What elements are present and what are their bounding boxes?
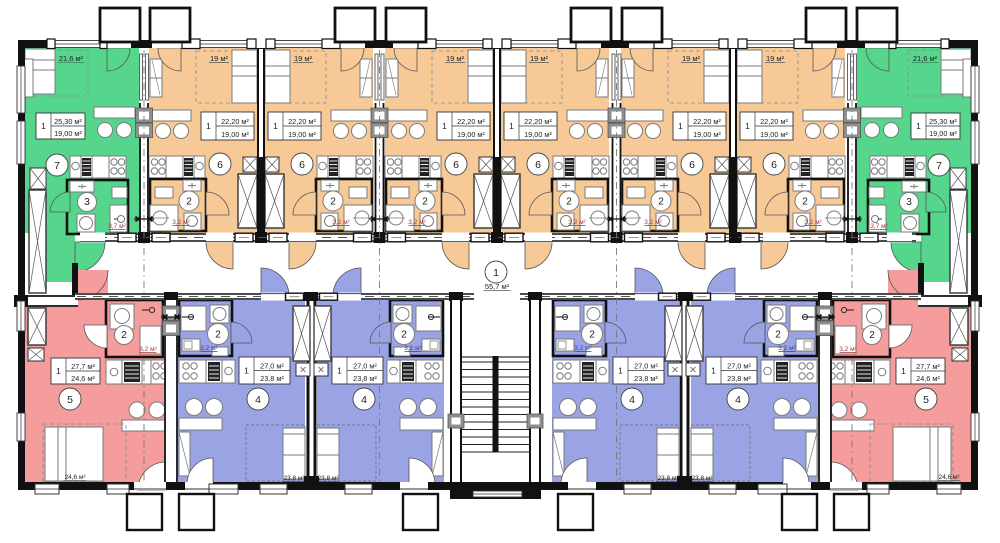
svg-text:2: 2 <box>658 196 664 207</box>
svg-text:1: 1 <box>916 121 921 131</box>
svg-text:2: 2 <box>121 330 127 341</box>
svg-text:2: 2 <box>401 330 407 341</box>
svg-text:22,20 м²: 22,20 м² <box>760 117 788 126</box>
svg-text:4: 4 <box>361 394 367 406</box>
svg-text:27,7 м²: 27,7 м² <box>916 362 940 371</box>
svg-text:6: 6 <box>771 159 777 171</box>
svg-text:3,7 м²: 3,7 м² <box>108 223 126 230</box>
svg-text:2: 2 <box>566 196 572 207</box>
svg-text:1: 1 <box>442 121 447 131</box>
svg-text:3: 3 <box>84 197 90 208</box>
svg-text:1: 1 <box>901 366 906 376</box>
svg-text:27,0 м²: 27,0 м² <box>727 362 751 371</box>
svg-text:23,8 м²: 23,8 м² <box>691 475 713 482</box>
svg-text:1: 1 <box>56 366 61 376</box>
svg-text:1: 1 <box>337 366 342 376</box>
svg-text:3,7 м²: 3,7 м² <box>870 223 888 230</box>
svg-text:23,8 м²: 23,8 м² <box>353 374 377 383</box>
svg-text:24,6 м²: 24,6 м² <box>916 374 940 383</box>
svg-text:1: 1 <box>41 121 46 131</box>
svg-text:1: 1 <box>618 366 623 376</box>
svg-text:3,2 м²: 3,2 м² <box>778 345 796 352</box>
svg-text:2: 2 <box>215 330 221 341</box>
svg-text:21,6 м²: 21,6 м² <box>59 54 84 63</box>
svg-text:1: 1 <box>493 267 499 279</box>
svg-text:1: 1 <box>244 366 249 376</box>
svg-text:5: 5 <box>923 394 929 406</box>
svg-text:3,2 м²: 3,2 м² <box>644 219 662 226</box>
svg-text:6: 6 <box>535 159 541 171</box>
svg-text:23,8 м²: 23,8 м² <box>260 374 284 383</box>
svg-text:19 м²: 19 м² <box>446 54 465 63</box>
svg-text:1: 1 <box>509 121 514 131</box>
svg-text:19,00 м²: 19,00 м² <box>221 130 249 139</box>
svg-text:19,00 м²: 19,00 м² <box>929 129 957 138</box>
svg-text:22,20 м²: 22,20 м² <box>221 117 249 126</box>
svg-text:2: 2 <box>186 196 192 207</box>
svg-text:23,8 м²: 23,8 м² <box>727 374 751 383</box>
svg-text:23,8 м²: 23,8 м² <box>283 475 305 482</box>
svg-text:2: 2 <box>589 330 595 341</box>
svg-text:22,20 м²: 22,20 м² <box>693 117 721 126</box>
svg-text:27,7 м²: 27,7 м² <box>71 362 95 371</box>
svg-text:19 м²: 19 м² <box>294 54 313 63</box>
svg-text:22,20 м²: 22,20 м² <box>524 117 552 126</box>
svg-text:24,6 м²: 24,6 м² <box>64 474 86 481</box>
svg-text:7: 7 <box>936 160 942 172</box>
svg-text:2: 2 <box>422 196 428 207</box>
svg-text:3,2 м²: 3,2 м² <box>200 345 218 352</box>
svg-text:6: 6 <box>217 159 223 171</box>
svg-text:19 м²: 19 м² <box>210 54 229 63</box>
svg-text:4: 4 <box>735 394 741 406</box>
svg-text:24,6 м²: 24,6 м² <box>71 374 95 383</box>
svg-text:1: 1 <box>206 121 211 131</box>
svg-text:19,00 м²: 19,00 м² <box>54 129 82 138</box>
svg-text:23,8 м²: 23,8 м² <box>317 475 339 482</box>
svg-text:3,2 м²: 3,2 м² <box>408 219 426 226</box>
svg-text:22,20 м²: 22,20 м² <box>288 117 316 126</box>
svg-text:19,00 м²: 19,00 м² <box>524 130 552 139</box>
svg-text:3,2 м²: 3,2 м² <box>139 346 157 353</box>
svg-text:22,20 м²: 22,20 м² <box>457 117 485 126</box>
svg-text:19,00 м²: 19,00 м² <box>760 130 788 139</box>
svg-text:23,8 м²: 23,8 м² <box>634 374 658 383</box>
svg-text:19 м²: 19 м² <box>766 54 785 63</box>
svg-text:2: 2 <box>330 196 336 207</box>
svg-text:1: 1 <box>273 121 278 131</box>
svg-text:3: 3 <box>906 197 912 208</box>
svg-text:27,0 м²: 27,0 м² <box>260 362 284 371</box>
svg-text:2: 2 <box>869 330 875 341</box>
svg-text:6: 6 <box>453 159 459 171</box>
svg-text:21,6 м²: 21,6 м² <box>913 54 938 63</box>
svg-text:4: 4 <box>629 394 635 406</box>
svg-text:3,2 м²: 3,2 м² <box>804 219 822 226</box>
svg-text:2: 2 <box>775 330 781 341</box>
svg-text:19 м²: 19 м² <box>530 54 549 63</box>
svg-text:4: 4 <box>255 394 261 406</box>
svg-text:25,30 м²: 25,30 м² <box>54 117 82 126</box>
svg-text:1: 1 <box>678 121 683 131</box>
svg-text:19,00 м²: 19,00 м² <box>288 130 316 139</box>
svg-text:1: 1 <box>711 366 716 376</box>
svg-text:2: 2 <box>802 196 808 207</box>
svg-text:3,2 м²: 3,2 м² <box>404 345 422 352</box>
svg-text:6: 6 <box>299 159 305 171</box>
svg-text:5: 5 <box>67 394 73 406</box>
svg-text:3,2 м²: 3,2 м² <box>172 219 190 226</box>
svg-text:24,6 м²: 24,6 м² <box>938 474 960 481</box>
svg-text:3,2 м²: 3,2 м² <box>574 345 592 352</box>
svg-text:27,0 м²: 27,0 м² <box>634 362 658 371</box>
svg-text:3,2 м²: 3,2 м² <box>568 219 586 226</box>
svg-text:19,00 м²: 19,00 м² <box>693 130 721 139</box>
svg-text:7: 7 <box>54 160 60 172</box>
svg-text:55,7 м²: 55,7 м² <box>485 282 510 291</box>
svg-text:23,8 м²: 23,8 м² <box>657 475 679 482</box>
svg-text:3,2 м²: 3,2 м² <box>839 346 857 353</box>
svg-text:19 м²: 19 м² <box>682 54 701 63</box>
svg-text:6: 6 <box>689 159 695 171</box>
svg-text:25,30 м²: 25,30 м² <box>929 117 957 126</box>
svg-text:1: 1 <box>745 121 750 131</box>
svg-text:3,2 м²: 3,2 м² <box>332 219 350 226</box>
svg-text:27,0 м²: 27,0 м² <box>353 362 377 371</box>
svg-text:19,00 м²: 19,00 м² <box>457 130 485 139</box>
